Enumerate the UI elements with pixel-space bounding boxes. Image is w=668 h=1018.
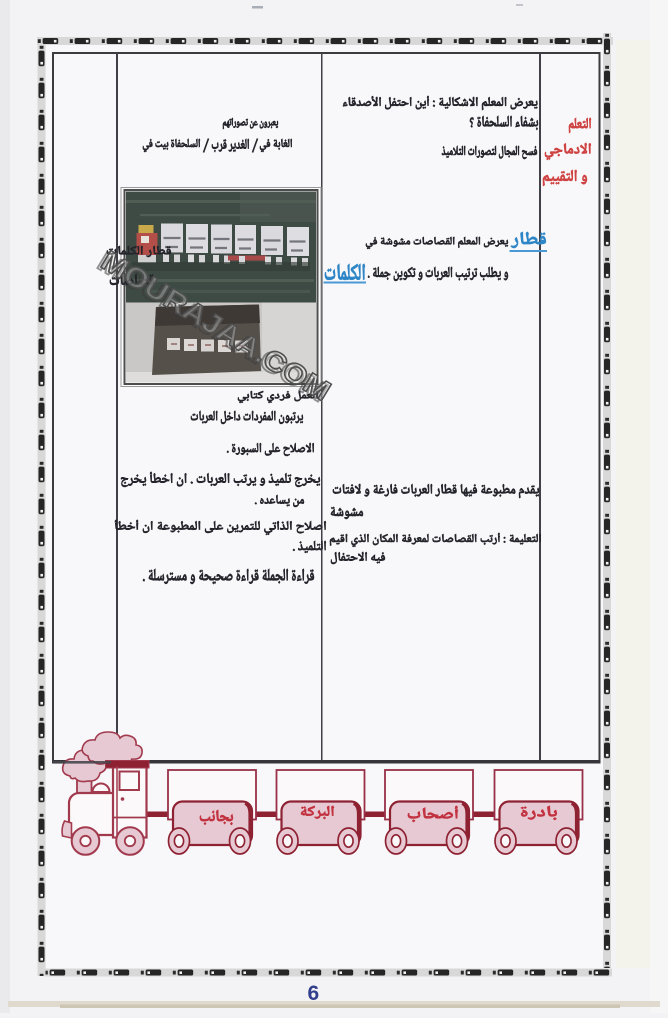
svg-text:6: 6 [308, 982, 320, 1005]
